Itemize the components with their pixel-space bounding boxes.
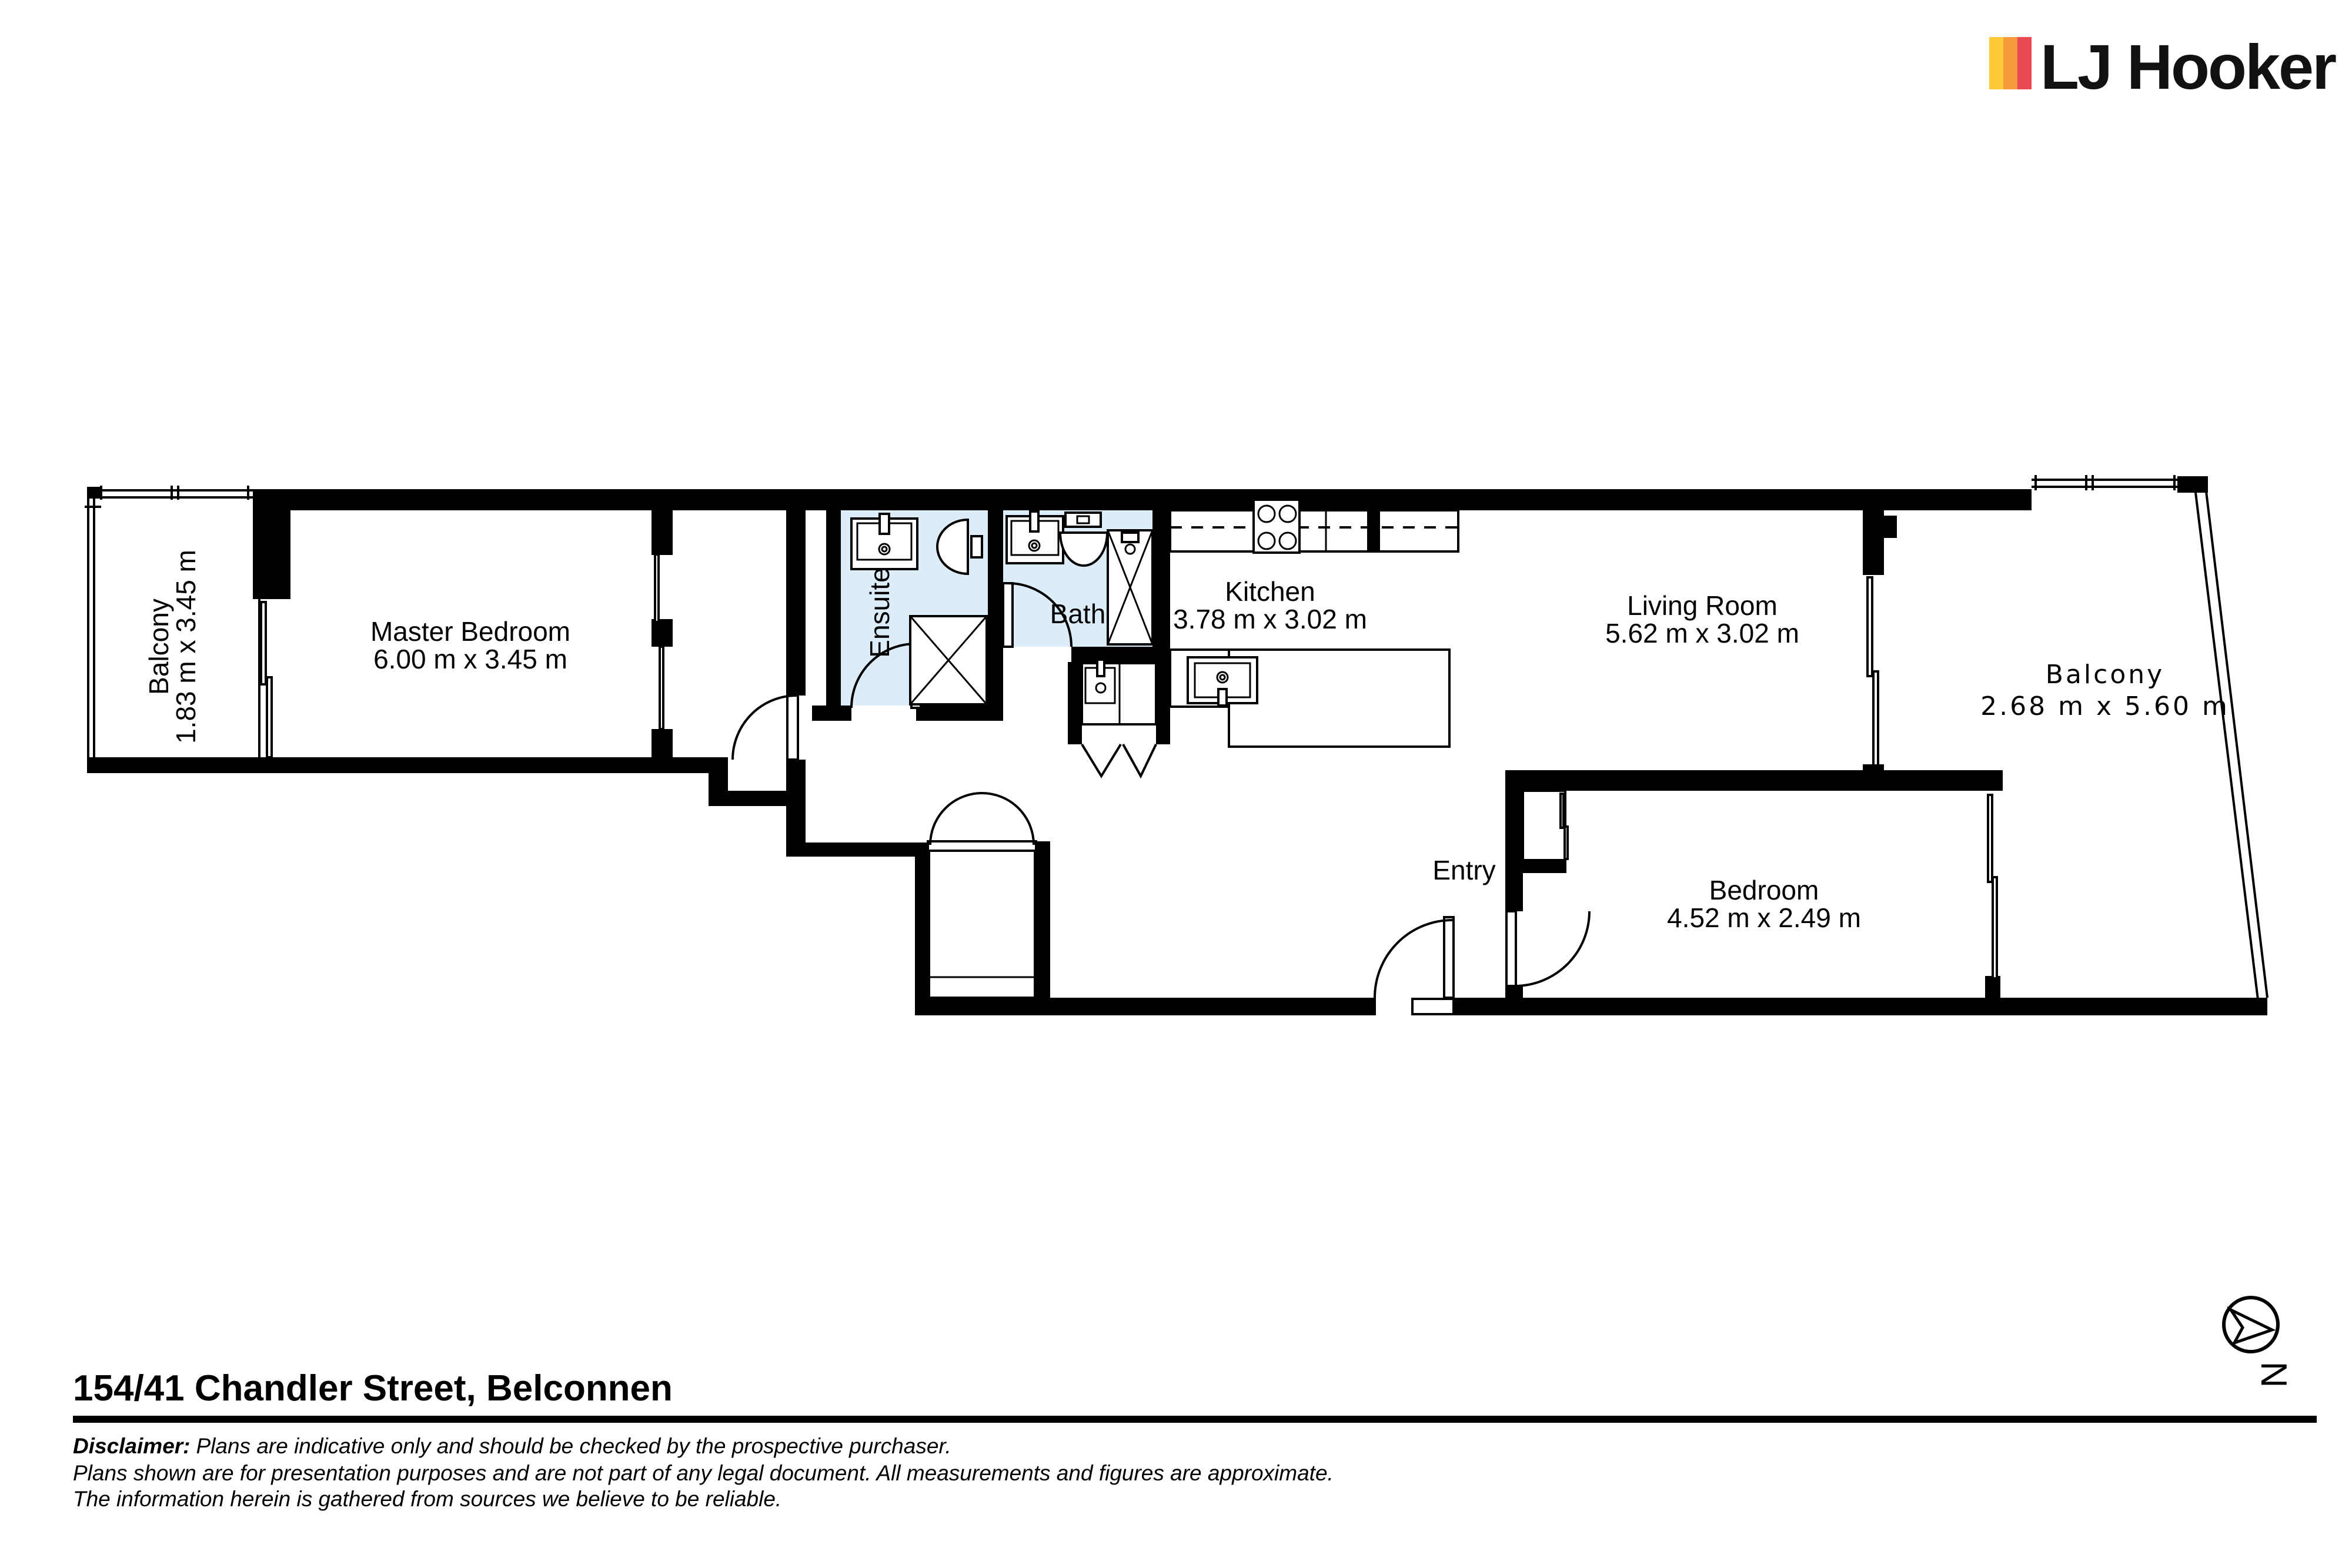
svg-text:5.62 m x 3.02 m: 5.62 m x 3.02 m xyxy=(1605,618,1799,648)
wall-robe-bottom xyxy=(652,729,673,758)
laundry-tub-icon xyxy=(1082,660,1156,724)
wall-master-door-upper xyxy=(786,510,806,696)
svg-text:Master Bedroom: Master Bedroom xyxy=(370,616,570,647)
rail-angled-inner xyxy=(2206,492,2267,998)
wall-robe2-bottom xyxy=(1505,860,1566,873)
bath-toilet-icon xyxy=(1060,513,1107,566)
svg-text:Balcony: Balcony xyxy=(143,599,174,695)
wall-master-west xyxy=(253,496,290,599)
wall-balcony-right-block xyxy=(2177,476,2208,493)
kitchen-counter xyxy=(1170,510,1458,551)
svg-text:Entry: Entry xyxy=(1432,855,1495,885)
wall-closet-right xyxy=(1035,841,1050,998)
label-bedroom: Bedroom 4.52 m x 2.49 m xyxy=(1667,875,1861,933)
bedroom-window-panel-2 xyxy=(1993,877,1997,978)
wall-laundry-right xyxy=(1156,662,1170,734)
wall-ensuite-bath-divider xyxy=(988,510,1003,721)
bath-door-leaf xyxy=(1003,583,1013,647)
kitchen-island xyxy=(1170,650,1449,747)
walkin-robe-slider-1 xyxy=(655,554,659,622)
wall-living-right-bottom xyxy=(1863,764,1884,791)
wall-living-right-top xyxy=(1863,510,1884,575)
room-labels: Balcony 1.83 m x 3.45 m Master Bedroom 6… xyxy=(143,550,2230,933)
master-slider-panel-1 xyxy=(261,602,266,684)
entry-door-leaf xyxy=(1444,917,1454,998)
north-label: N xyxy=(2253,1362,2294,1388)
hall-closet xyxy=(929,851,1035,998)
svg-text:Living Room: Living Room xyxy=(1627,590,1778,621)
walls xyxy=(87,476,2267,1015)
disclaimer-line-2: Plans shown are for presentation purpose… xyxy=(73,1461,1334,1485)
wall-entry-bedroom-divider xyxy=(1505,770,1523,911)
wall-master-door-stub xyxy=(786,760,806,791)
label-bath: Bath xyxy=(1050,599,1106,629)
ensuite-shower-icon xyxy=(910,616,987,704)
ensuite-sink-icon xyxy=(851,514,917,569)
closet-door-arc-right xyxy=(982,793,1034,845)
wall-bath-right xyxy=(1152,510,1170,662)
rail-angled-outer xyxy=(2196,493,2258,999)
disclaimer-line-3: The information herein is gathered from … xyxy=(73,1487,781,1511)
stove-icon xyxy=(1254,500,1299,553)
laundry-bifold-left xyxy=(1082,744,1121,776)
living-slider-panel-1 xyxy=(1867,577,1872,676)
label-kitchen: Kitchen 3.78 m x 3.02 m xyxy=(1173,576,1367,634)
lj-hooker-logo: LJ Hooker xyxy=(1989,31,2336,102)
wall-robe-top xyxy=(652,510,673,555)
balcony-railings xyxy=(85,475,2267,999)
svg-text:Kitchen: Kitchen xyxy=(1225,576,1315,607)
wall-balcony-pier xyxy=(1884,516,1897,538)
wall-robe-mid xyxy=(652,619,673,647)
bedroom-door-arc xyxy=(1515,911,1589,986)
wall-top xyxy=(253,489,2032,510)
wall-bath-bottom-l xyxy=(988,647,1003,662)
svg-text:1.83 m x 3.45 m: 1.83 m x 3.45 m xyxy=(171,550,201,744)
logo-brand-text: LJ Hooker xyxy=(2040,31,2336,102)
closet-door-arc-left xyxy=(930,793,982,845)
label-entry: Entry xyxy=(1432,855,1495,885)
logo-stripe-yellow xyxy=(1989,37,2003,89)
svg-text:Ensuite: Ensuite xyxy=(864,567,895,657)
logo-stripe-orange xyxy=(2003,37,2017,89)
master-door-leaf xyxy=(787,696,798,760)
wall-south-a xyxy=(87,757,728,773)
svg-text:2.68 m x 5.60 m: 2.68 m x 5.60 m xyxy=(1980,691,2230,721)
bedroom-window-panel-1 xyxy=(1988,795,1992,882)
label-master-bedroom: Master Bedroom 6.00 m x 3.45 m xyxy=(370,616,570,674)
wall-step-horizontal xyxy=(806,842,929,857)
wall-laundry-left xyxy=(1068,662,1082,734)
footer-rule xyxy=(73,1416,2317,1423)
bedroom-robe-slider-1 xyxy=(1561,794,1563,828)
bath-sink-icon xyxy=(1007,511,1063,563)
wall-south-b xyxy=(709,791,786,806)
footer: 154/41 Chandler Street, Belconnen Discla… xyxy=(73,1368,2317,1511)
svg-text:Bedroom: Bedroom xyxy=(1709,875,1819,905)
master-slider-panel-2 xyxy=(267,677,272,757)
entry-door-arc xyxy=(1375,920,1452,998)
wall-laundry-stub-l xyxy=(1068,734,1082,744)
svg-text:6.00 m x 3.45 m: 6.00 m x 3.45 m xyxy=(373,644,567,674)
label-balcony-right: Balcony 2.68 m x 5.60 m xyxy=(1980,660,2230,721)
wall-ensuite-left xyxy=(826,510,841,721)
wall-ensuite-bottom-r xyxy=(916,706,988,721)
north-compass-icon: N xyxy=(2224,1298,2294,1388)
svg-text:3.78 m x 3.02 m: 3.78 m x 3.02 m xyxy=(1173,604,1367,634)
wall-ensuite-bottom-l xyxy=(812,706,851,721)
bath-shower-icon xyxy=(1108,530,1152,644)
wall-bottom-left xyxy=(915,998,1376,1015)
wall-bottom-right xyxy=(1454,998,2267,1015)
living-slider-panel-2 xyxy=(1873,671,1878,765)
wall-laundry-stub-r xyxy=(1156,734,1170,744)
label-living-room: Living Room 5.62 m x 3.02 m xyxy=(1605,590,1799,648)
label-ensuite: Ensuite xyxy=(864,567,895,657)
walkin-robe-slider-2 xyxy=(660,647,663,729)
disclaimer-line-1: Disclaimer:Plans are indicative only and… xyxy=(73,1434,951,1458)
svg-text:Bath: Bath xyxy=(1050,599,1106,629)
wall-master-door-lower xyxy=(786,791,806,857)
laundry-bifold-right xyxy=(1123,744,1156,776)
entry-threshold xyxy=(1412,999,1454,1014)
bedroom-robe-box xyxy=(1523,791,1565,860)
svg-text:4.52 m x 2.49 m: 4.52 m x 2.49 m xyxy=(1667,902,1861,933)
wall-step-vertical xyxy=(915,857,929,998)
logo-stripe-red xyxy=(2017,37,2032,89)
label-balcony-left: Balcony 1.83 m x 3.45 m xyxy=(143,550,201,744)
wall-bedroom-door-stub xyxy=(1505,986,1523,998)
address-title: 154/41 Chandler Street, Belconnen xyxy=(73,1368,673,1409)
bedroom-robe-slider-2 xyxy=(1565,827,1568,859)
svg-text:Balcony: Balcony xyxy=(2046,660,2164,690)
wall-bedroom-top xyxy=(1505,770,2003,791)
floorplan-page: LJ Hooker xyxy=(0,0,2352,1568)
bedroom-door-leaf xyxy=(1506,911,1516,986)
closet-threshold xyxy=(928,841,1036,851)
